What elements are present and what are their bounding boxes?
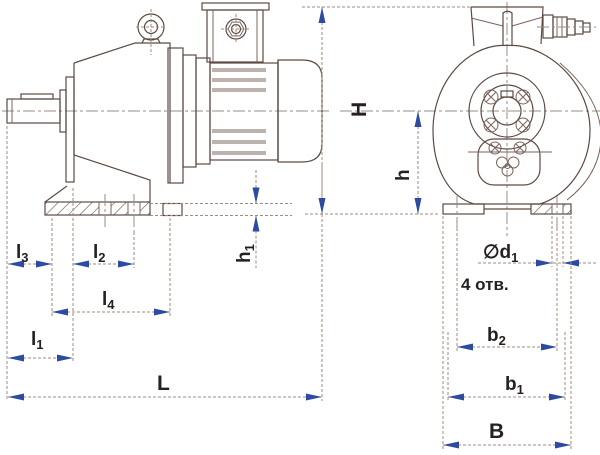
holes-count-note: 4 отв. [461,275,509,294]
shaft-key [21,94,53,99]
mounting-foot [45,194,150,232]
dim-label-h1: h1 [234,244,257,263]
dim-label-h: h [393,169,414,181]
dim-label-l1: l1 [31,329,44,352]
gearbox-housing [45,43,170,202]
technical-drawing-page: l3 l2 l4 l1 L h1 [0,0,600,455]
dim-label-b1: b1 [505,374,524,397]
dim-label-l4: l4 [102,289,115,312]
housing-rim-contour [560,63,600,200]
dim-label-B: B [489,420,504,443]
dim-label-b2: b2 [487,325,506,348]
front-view [305,2,600,236]
side-view [2,3,332,232]
dimension-l1: l1 [8,329,73,362]
eyebolt [136,9,166,55]
terminal-box-side [202,3,269,62]
support-block [163,204,182,216]
dimension-b1: b1 [448,332,565,402]
gearmotor-dimension-drawing: l3 l2 l4 l1 L h1 [0,0,600,455]
dimension-l3: l3 [7,126,52,401]
dim-label-L: L [157,372,170,395]
dimension-h1: h1 [234,170,260,268]
output-shaft [7,77,74,182]
lower-boss [468,139,552,185]
dimension-d1: ∅d1 4 отв. [461,216,597,294]
cable-gland [537,15,596,38]
dim-label-d1: ∅d1 [483,242,518,265]
dimension-l4: l4 [52,218,170,316]
dimension-L: L [8,164,322,401]
terminal-box-front [471,7,596,46]
dimension-h: h [393,111,422,214]
dim-label-H: H [348,102,371,117]
dim-label-l2: l2 [93,242,106,265]
dim-label-l3: l3 [16,242,29,265]
